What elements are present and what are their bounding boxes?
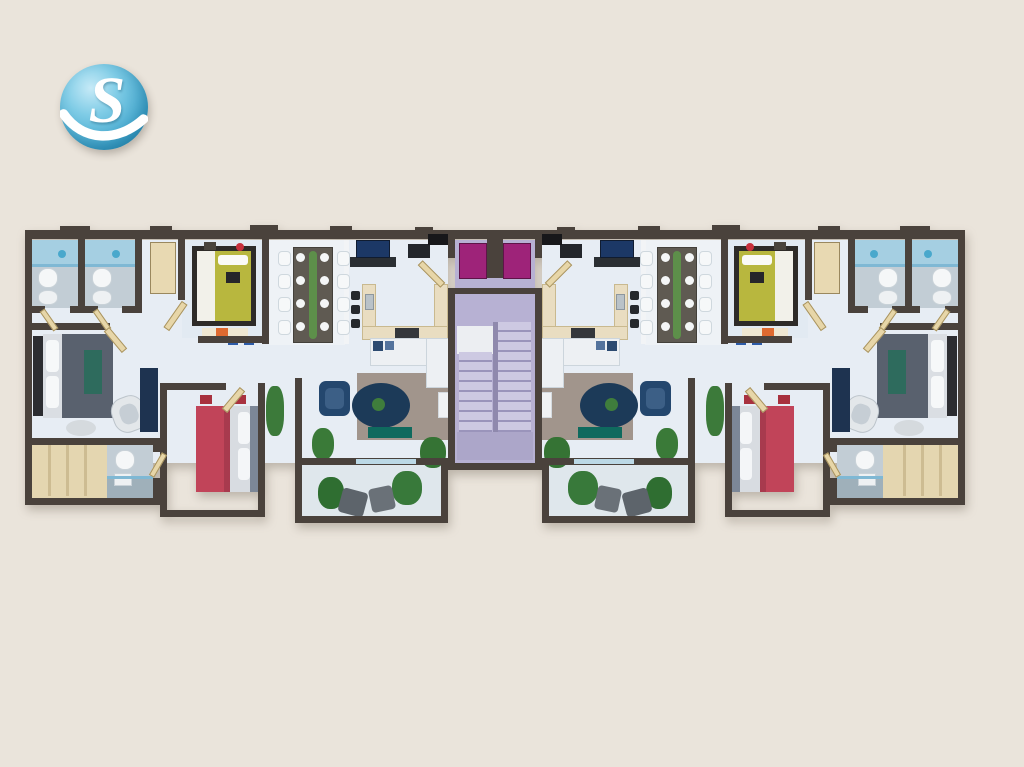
dining-chair <box>337 297 350 312</box>
bidet <box>932 290 952 305</box>
stair-entry-magenta <box>503 243 531 279</box>
wardrobe-navy <box>832 368 850 432</box>
sofa-pillow <box>373 341 383 351</box>
closet-shelf <box>48 444 51 496</box>
toilet <box>932 268 952 288</box>
bed-throw-teal <box>84 350 102 394</box>
tv <box>356 240 390 258</box>
wall-red-right <box>725 383 732 517</box>
wall-master-bottom <box>25 438 160 445</box>
wall-bottom-closet <box>25 498 160 505</box>
wall-balcony-left <box>295 458 302 523</box>
closet-shelf <box>66 444 69 496</box>
plant <box>266 386 284 436</box>
vent-unit <box>540 234 562 245</box>
shower-glass <box>837 476 883 479</box>
hall-wardrobe <box>150 242 176 294</box>
dining-chair <box>337 251 350 266</box>
wall-bedroom-right <box>262 230 269 344</box>
wardrobe-navy <box>140 368 158 432</box>
bathroom-2-shower <box>85 240 135 266</box>
wall-decor-antlers <box>774 242 786 250</box>
wall-master-top <box>880 323 965 330</box>
bathroom-2-shower <box>855 240 905 266</box>
bar-stool <box>630 319 639 328</box>
bench-teal <box>578 427 622 438</box>
stair-landing-white <box>457 326 495 354</box>
place-setting <box>296 322 305 331</box>
screenshot-canvas: S <box>0 0 1024 767</box>
wall-decor-red-dot <box>236 243 244 251</box>
lounge-chair <box>594 485 622 513</box>
dining-chair <box>640 251 653 266</box>
sofa-pillow <box>607 341 617 351</box>
nightstand-red <box>200 395 212 404</box>
wall-bedroom-bottom <box>721 336 792 343</box>
rug-plant <box>372 398 385 411</box>
dining-chair <box>699 251 712 266</box>
laptop <box>226 272 240 283</box>
wall-pillar <box>415 227 433 233</box>
closet-shelf <box>939 444 942 496</box>
wall-red-left <box>160 383 167 517</box>
place-setting <box>661 276 670 285</box>
balcony-glass-door <box>356 459 416 464</box>
wall-red-top <box>764 383 830 390</box>
bed-headboard <box>33 336 43 416</box>
round-rug-small <box>66 420 96 436</box>
wall-bedroom-left <box>805 238 812 300</box>
bidet <box>878 290 898 305</box>
dining-chair <box>699 274 712 289</box>
wall-stair-left <box>535 230 542 258</box>
place-setting <box>685 299 694 308</box>
tv-console <box>350 257 396 267</box>
laptop <box>750 272 764 283</box>
toilet <box>92 268 112 288</box>
closet-shelf <box>921 444 924 496</box>
dining-chair <box>640 297 653 312</box>
wall-balcony-bottom <box>542 516 695 523</box>
bedroom-rug-accent <box>762 328 774 336</box>
toilet <box>38 268 58 288</box>
place-setting <box>685 253 694 262</box>
dining-chair <box>337 320 350 335</box>
nightstand-red <box>778 395 790 404</box>
place-setting <box>320 276 329 285</box>
wall-stair-divider <box>495 238 503 278</box>
wall-stair-under <box>448 288 542 294</box>
plant <box>706 386 724 436</box>
wall-bath-divider <box>78 230 85 313</box>
wall-bath3-right <box>830 478 837 505</box>
wall-decor-antlers <box>204 242 216 250</box>
table-garland <box>673 251 681 339</box>
dining-chair <box>699 297 712 312</box>
stair-bottom-landing <box>457 432 533 460</box>
place-setting <box>661 322 670 331</box>
blanket-fold <box>224 406 230 492</box>
bed-pillows <box>742 255 772 265</box>
place-setting <box>685 322 694 331</box>
bed-pillow <box>238 412 250 444</box>
bathroom-1-shower <box>912 240 958 266</box>
dining-chair <box>640 274 653 289</box>
wall-pillar <box>60 226 90 232</box>
toilet <box>115 450 135 470</box>
wall-bath-divider <box>905 230 912 313</box>
place-setting <box>296 253 305 262</box>
wall-bedroom-bottom <box>198 336 269 343</box>
dining-chair <box>278 274 291 289</box>
sofa-pillow <box>596 341 605 350</box>
plant <box>312 428 334 460</box>
wall-balcony-right <box>441 458 448 523</box>
dining-chair <box>278 251 291 266</box>
wall-red-bottom <box>725 510 830 517</box>
shower-glass <box>107 476 153 479</box>
wall-screen <box>560 244 582 258</box>
place-setting <box>685 276 694 285</box>
lounge-chair <box>368 485 396 513</box>
bar-stool <box>630 305 639 314</box>
shower-glass <box>912 264 958 267</box>
bed-throw-teal <box>888 350 906 394</box>
wall-stair-divider <box>487 238 495 278</box>
stair-flight <box>498 322 531 432</box>
wall-bath3-right <box>153 440 160 452</box>
bed-pillow <box>740 412 752 444</box>
wall-decor-red-dot <box>746 243 754 251</box>
dining-chair <box>278 297 291 312</box>
closet-room-floor <box>32 442 107 498</box>
wall-red-right <box>258 383 265 517</box>
bar-stool <box>351 305 360 314</box>
sink <box>858 473 876 486</box>
vent-unit <box>428 234 450 245</box>
wall-bedroom-left <box>178 238 185 300</box>
shower-glass <box>32 264 78 267</box>
place-setting <box>320 299 329 308</box>
shower-head <box>112 250 120 258</box>
shower-glass <box>855 264 905 267</box>
wall-red-bottom <box>160 510 265 517</box>
wall-master-bottom <box>830 438 965 445</box>
place-setting <box>661 253 670 262</box>
shower-head <box>870 250 878 258</box>
stair-flight <box>459 352 492 432</box>
wall-red-left <box>823 383 830 517</box>
bedroom-rug-accent <box>216 328 228 336</box>
stair-rail <box>493 322 498 432</box>
blanket-fold <box>760 406 766 492</box>
bar-stool <box>630 291 639 300</box>
wall-balcony-right <box>542 458 549 523</box>
bed-pillows <box>218 255 248 265</box>
place-setting <box>296 299 305 308</box>
bar-stool <box>351 291 360 300</box>
wall-pillar <box>557 227 575 233</box>
bidet <box>38 290 58 305</box>
place-setting <box>661 299 670 308</box>
hall-wardrobe <box>814 242 840 294</box>
table-garland <box>309 251 317 339</box>
bathroom-1-shower <box>32 240 78 266</box>
wall-pillar <box>818 226 840 232</box>
wall-bath2-right <box>135 230 142 313</box>
plant <box>392 471 422 505</box>
shower-head <box>58 250 66 258</box>
wall-stair-left <box>448 230 455 258</box>
wall-bath2-right <box>848 230 855 313</box>
bed-headboard <box>947 336 957 416</box>
wall-pillar <box>330 226 352 232</box>
armchair-seat <box>646 388 665 409</box>
bench-teal <box>368 427 412 438</box>
sink <box>114 473 132 486</box>
wall-screen <box>408 244 430 258</box>
wall-stair-bottom <box>448 463 542 470</box>
bed-pillow <box>238 448 250 480</box>
wall-left <box>958 230 965 505</box>
place-setting <box>296 276 305 285</box>
place-setting <box>320 322 329 331</box>
bed-pillow <box>46 340 59 372</box>
sofa-pillow <box>385 341 394 350</box>
wall-bedroom-right <box>721 230 728 344</box>
wall-balcony-left <box>688 458 695 523</box>
dining-chair <box>278 320 291 335</box>
kitchen-sink <box>365 294 374 310</box>
dining-chair <box>699 320 712 335</box>
floor-plan <box>0 0 1024 767</box>
bar-stool <box>351 319 360 328</box>
tv-console <box>594 257 640 267</box>
shower-glass <box>85 264 135 267</box>
round-rug-small <box>894 420 924 436</box>
wall-pillar <box>638 226 660 232</box>
wall-stair-left <box>448 292 455 470</box>
bed-pillow <box>931 376 944 408</box>
closet-shelf <box>903 444 906 496</box>
plant <box>656 428 678 460</box>
bidet <box>92 290 112 305</box>
kitchen-sink <box>616 294 625 310</box>
tv <box>600 240 634 258</box>
wall-living-left <box>295 378 302 465</box>
wall-left <box>25 230 32 505</box>
wall-bath3-right <box>153 478 160 505</box>
wall-stair-left <box>535 292 542 470</box>
wall-red-top <box>160 383 226 390</box>
rug-plant <box>605 398 618 411</box>
bed-pillow <box>931 340 944 372</box>
plant <box>568 471 598 505</box>
place-setting <box>320 253 329 262</box>
bed-pillow <box>46 376 59 408</box>
wall-balcony-bottom <box>295 516 448 523</box>
balcony-glass-door <box>574 459 634 464</box>
toilet <box>878 268 898 288</box>
shower-head <box>924 250 932 258</box>
dining-chair <box>640 320 653 335</box>
wall-master-top <box>25 323 110 330</box>
bed-blanket-red <box>762 406 794 492</box>
toilet <box>855 450 875 470</box>
wall-bottom-closet <box>830 498 965 505</box>
wall-bath3-right <box>830 440 837 452</box>
wall-pillar <box>150 226 172 232</box>
bed-pillow <box>740 448 752 480</box>
closet-shelf <box>84 444 87 496</box>
armchair-seat <box>325 388 344 409</box>
dining-chair <box>337 274 350 289</box>
stair-entry-magenta <box>459 243 487 279</box>
wall-living-left <box>688 378 695 465</box>
